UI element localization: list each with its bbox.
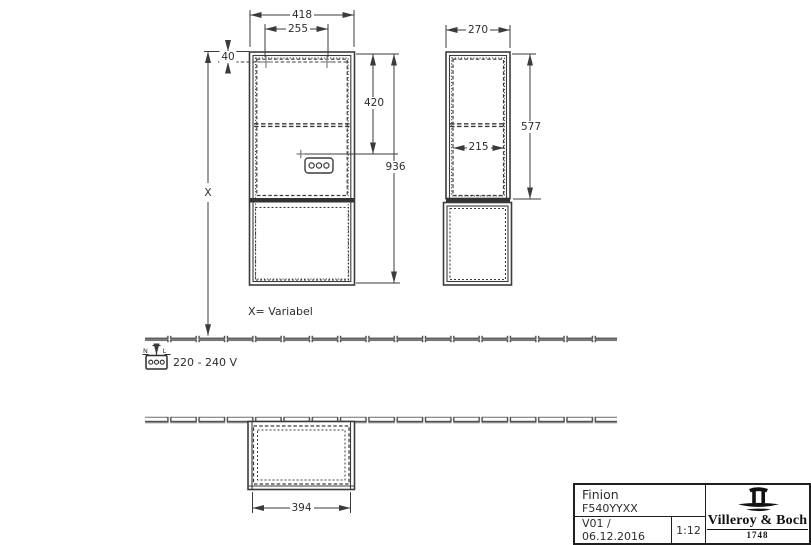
- dim-overall-width: 418: [290, 9, 314, 21]
- article-number: F540YYXX: [582, 502, 705, 515]
- dim-top-offset: 40: [219, 51, 236, 63]
- dim-mounting-spacing: 255: [286, 23, 310, 35]
- dim-variable-height: X: [202, 187, 213, 199]
- side-view: [444, 52, 512, 285]
- dim-carcass-width: 394: [289, 502, 313, 514]
- dim-socket-height: 420: [362, 97, 386, 109]
- brand-wordmark: Villeroy & Boch: [707, 513, 808, 530]
- brand-logo: Villeroy & Boch 1748: [706, 485, 809, 543]
- technical-drawing-page: N L 418 255 40 X 420 936 270 215 577 394…: [0, 0, 811, 545]
- front-view: [218, 52, 355, 285]
- version-date: V01 / 06.12.2016: [575, 517, 672, 543]
- wall-line-plan: [145, 417, 617, 423]
- title-block-bottom-row: V01 / 06.12.2016 1:12: [575, 517, 705, 543]
- drawing-scale: 1:12: [672, 517, 705, 543]
- terminal-l-label: L: [163, 347, 167, 355]
- title-block-left: Finion F540YYXX V01 / 06.12.2016 1:12: [575, 485, 706, 543]
- voltage-note: 220 - 240 V: [173, 356, 237, 369]
- dim-overall-height: 936: [383, 161, 407, 173]
- product-name: Finion: [582, 487, 705, 502]
- floor-line: [145, 336, 617, 342]
- plan-view: [248, 422, 355, 490]
- power-connection-icon: N L: [143, 346, 171, 370]
- terminal-n-label: N: [143, 347, 148, 355]
- dim-inner-depth: 215: [466, 141, 490, 153]
- dim-depth: 270: [466, 24, 490, 36]
- brand-emblem-icon: [726, 487, 790, 513]
- dim-upper-height: 577: [519, 121, 543, 133]
- drawing-linework: N L: [0, 0, 811, 545]
- product-cell: Finion F540YYXX: [575, 485, 705, 517]
- brand-year: 1748: [747, 530, 769, 541]
- variable-note: X= Variabel: [248, 305, 313, 318]
- title-block: Finion F540YYXX V01 / 06.12.2016 1:12 Vi…: [573, 483, 811, 545]
